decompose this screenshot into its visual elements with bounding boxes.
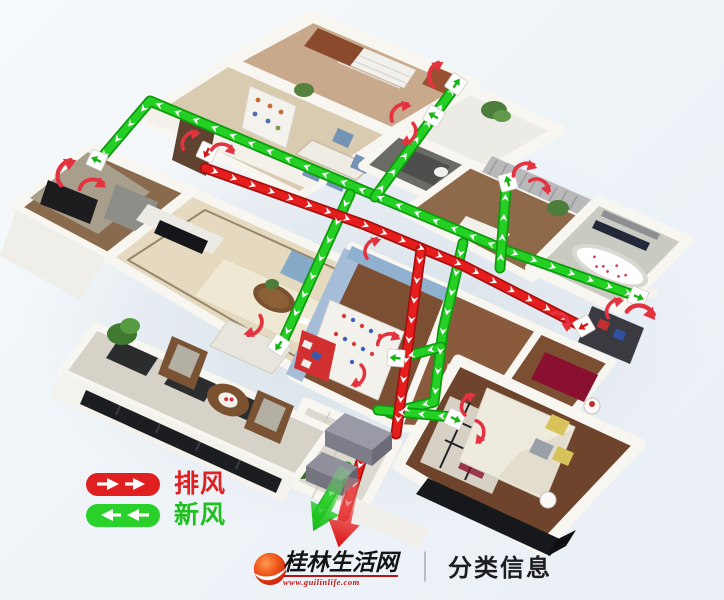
plant xyxy=(265,279,279,289)
lamp xyxy=(540,492,556,508)
watermark-section: 分类信息 xyxy=(448,552,552,586)
plant xyxy=(294,83,314,97)
legend-exhaust-row: 排风 xyxy=(86,472,226,496)
site-watermark: 桂林生活网 www.guilinlife.com ｜ 分类信息 xyxy=(251,550,552,588)
site-name-block: 桂林生活网 www.guilinlife.com xyxy=(283,551,398,587)
legend: 排风 新风 xyxy=(86,472,226,527)
legend-fresh-row: 新风 xyxy=(86,503,226,527)
ventilation-floorplan-image: 排风 新风 桂林生活网 www.guilinlife.com ｜ 分类信息 xyxy=(0,0,724,600)
toilet xyxy=(434,167,448,177)
watermark-divider: ｜ xyxy=(410,552,440,586)
legend-exhaust-label: 排风 xyxy=(174,472,226,496)
site-url: www.guilinlife.com xyxy=(283,577,360,587)
legend-fresh-label: 新风 xyxy=(174,503,226,527)
site-name: 桂林生活网 xyxy=(283,551,398,577)
fresh-arrow-icon xyxy=(86,504,160,527)
exhaust-arrow-icon xyxy=(86,473,160,496)
plant xyxy=(547,200,569,216)
